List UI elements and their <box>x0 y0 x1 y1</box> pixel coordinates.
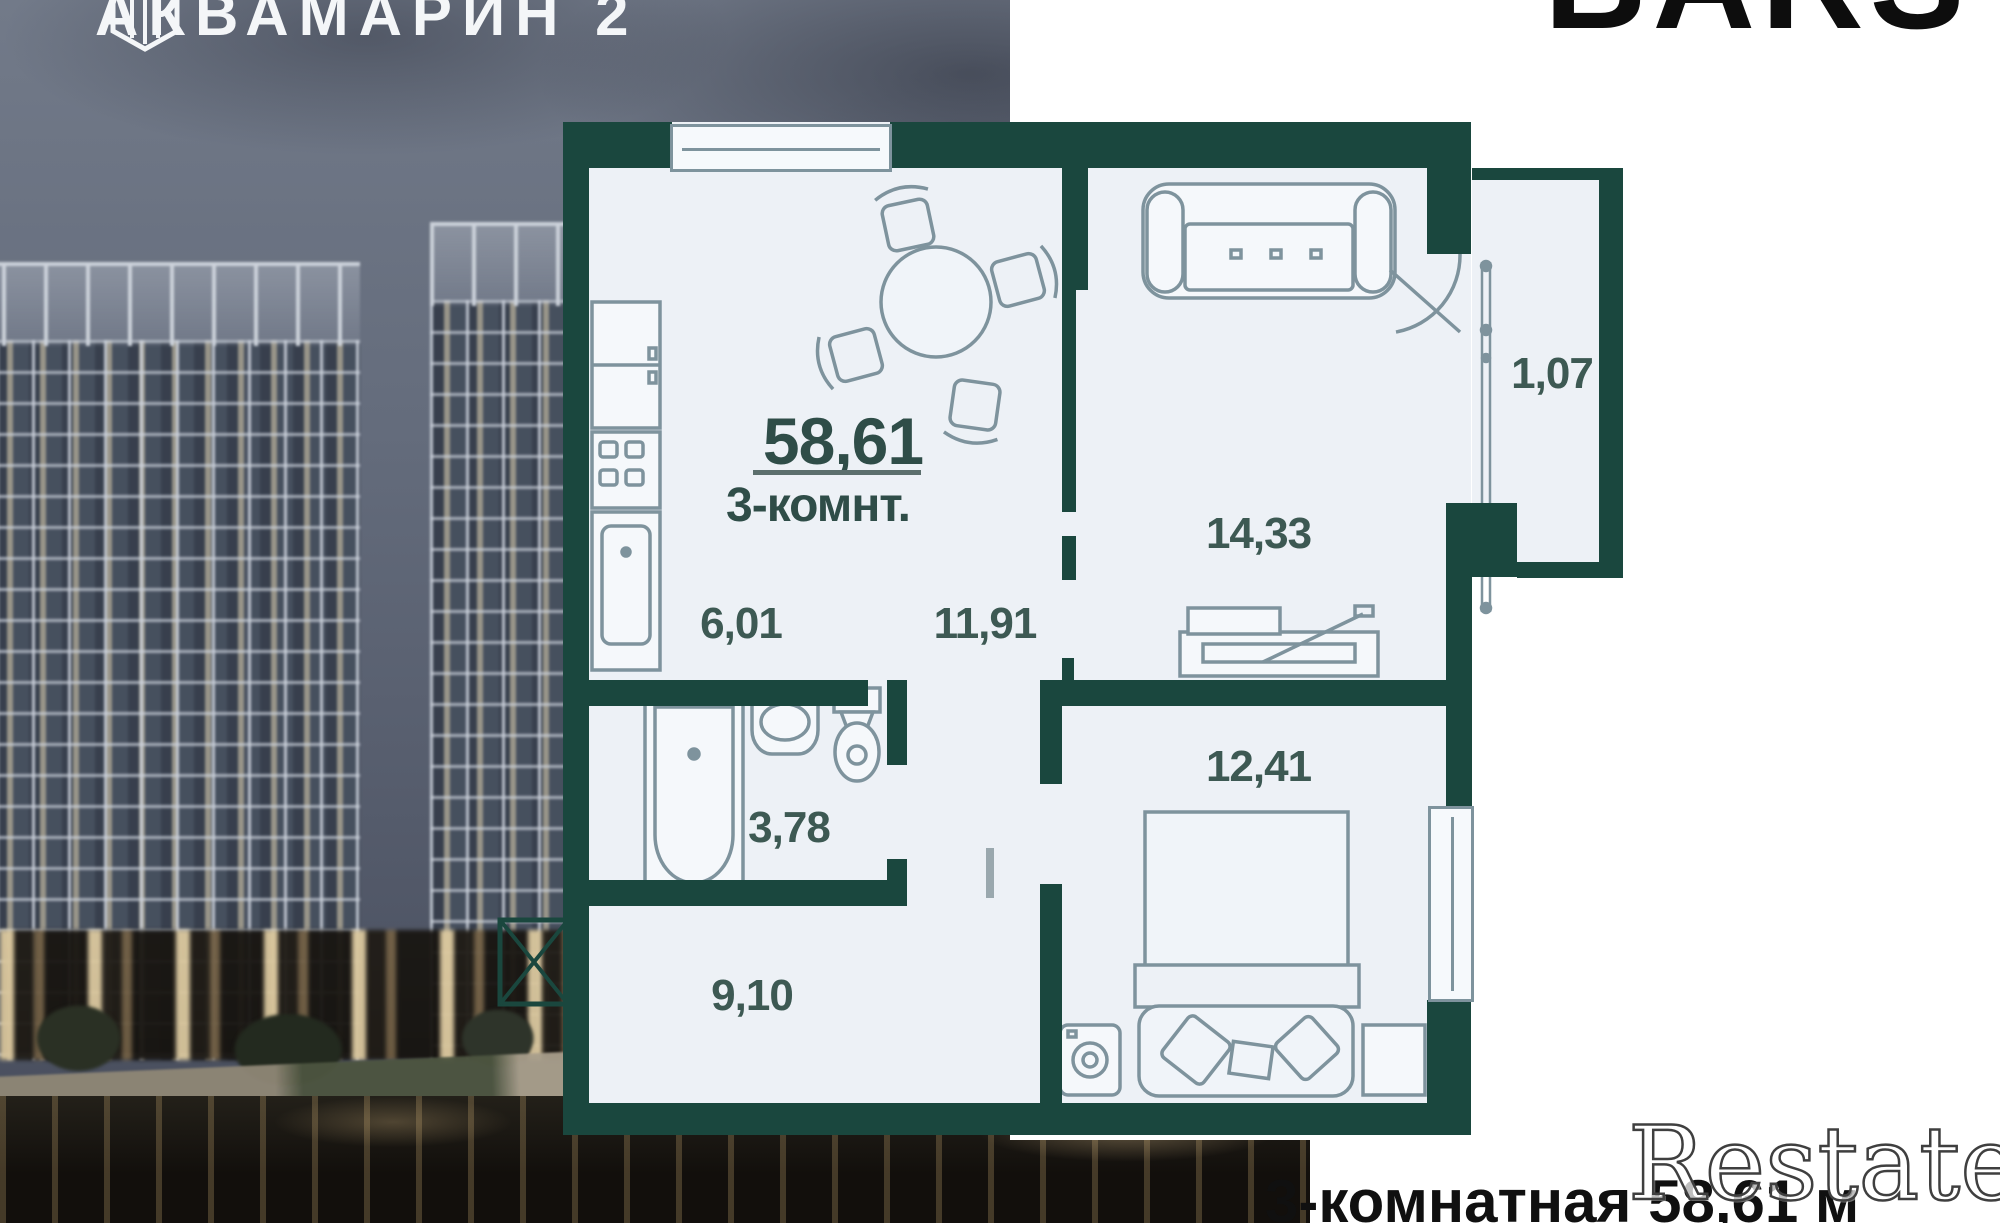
wall-segment <box>887 680 907 765</box>
wall-segment <box>1062 536 1076 580</box>
layout-label: 3-комнт. <box>693 482 943 530</box>
room-area-label-kitchen: 6,01 <box>691 602 791 646</box>
kitchen-cabinet-icon <box>592 512 660 670</box>
room-area-label-bedroom: 12,41 <box>1196 745 1321 789</box>
wall-segment <box>563 1103 1471 1135</box>
wall-segment <box>1427 122 1471 254</box>
wall-segment <box>563 122 589 1135</box>
room-area-label-corridor: 9,10 <box>698 974 806 1018</box>
wall-segment <box>890 122 1427 168</box>
wall-segment <box>1040 680 1452 706</box>
dining-table-icon <box>881 247 991 357</box>
flyer: 58,61 3-комнт. 6,01 11,91 14,33 1,07 3,7… <box>0 0 2000 1223</box>
chair-icon <box>943 378 1005 446</box>
wall-segment <box>1446 503 1517 577</box>
wall-segment <box>1427 1000 1471 1103</box>
wall-segment <box>1062 658 1074 680</box>
wall-segment <box>1062 290 1076 512</box>
wall-segment <box>563 880 907 906</box>
kitchen-window-symbol <box>670 124 892 172</box>
chair-icon <box>812 323 885 391</box>
room-area-label-balcony: 1,07 <box>1498 352 1606 396</box>
balcony-door-arc-icon <box>1390 254 1460 332</box>
nightstand-icon <box>1363 1025 1425 1095</box>
washing-machine-icon <box>1060 1025 1120 1095</box>
wall-segment <box>1472 168 1612 180</box>
chair-icon <box>989 244 1062 312</box>
total-area-underline <box>753 470 921 475</box>
bedroom-window-symbol <box>1428 806 1474 1002</box>
room-area-label-hallway: 11,91 <box>925 602 1045 646</box>
room-area-label-bathroom: 3,78 <box>733 806 845 850</box>
wall-segment <box>1517 562 1623 578</box>
complex-logo: АКВАМАРИН 2 <box>95 0 638 49</box>
wall-segment <box>1062 168 1088 290</box>
wall-segment <box>1446 577 1472 807</box>
fridge-icon <box>592 302 660 428</box>
wall-segment <box>1040 706 1062 784</box>
chair-icon <box>874 182 940 253</box>
watermark: Restate <box>1628 1114 2000 1216</box>
developer-logo: BARS <box>1544 0 1970 62</box>
entrance-cross-icon <box>497 917 571 1007</box>
desk-icon <box>1180 606 1378 676</box>
bathtub-icon <box>645 697 743 893</box>
floor-plan: 58,61 3-комнт. 6,01 11,91 14,33 1,07 3,7… <box>563 122 1630 1143</box>
wall-segment <box>1040 884 1062 1103</box>
entry-door-leaf <box>986 848 994 898</box>
total-area-label: 58,61 <box>743 408 943 474</box>
bed-icon <box>1135 812 1359 1096</box>
wall-segment <box>576 680 868 706</box>
room-area-label-living-room: 14,33 <box>1196 512 1321 556</box>
sofa-icon <box>1143 184 1395 298</box>
stove-icon <box>592 432 660 508</box>
